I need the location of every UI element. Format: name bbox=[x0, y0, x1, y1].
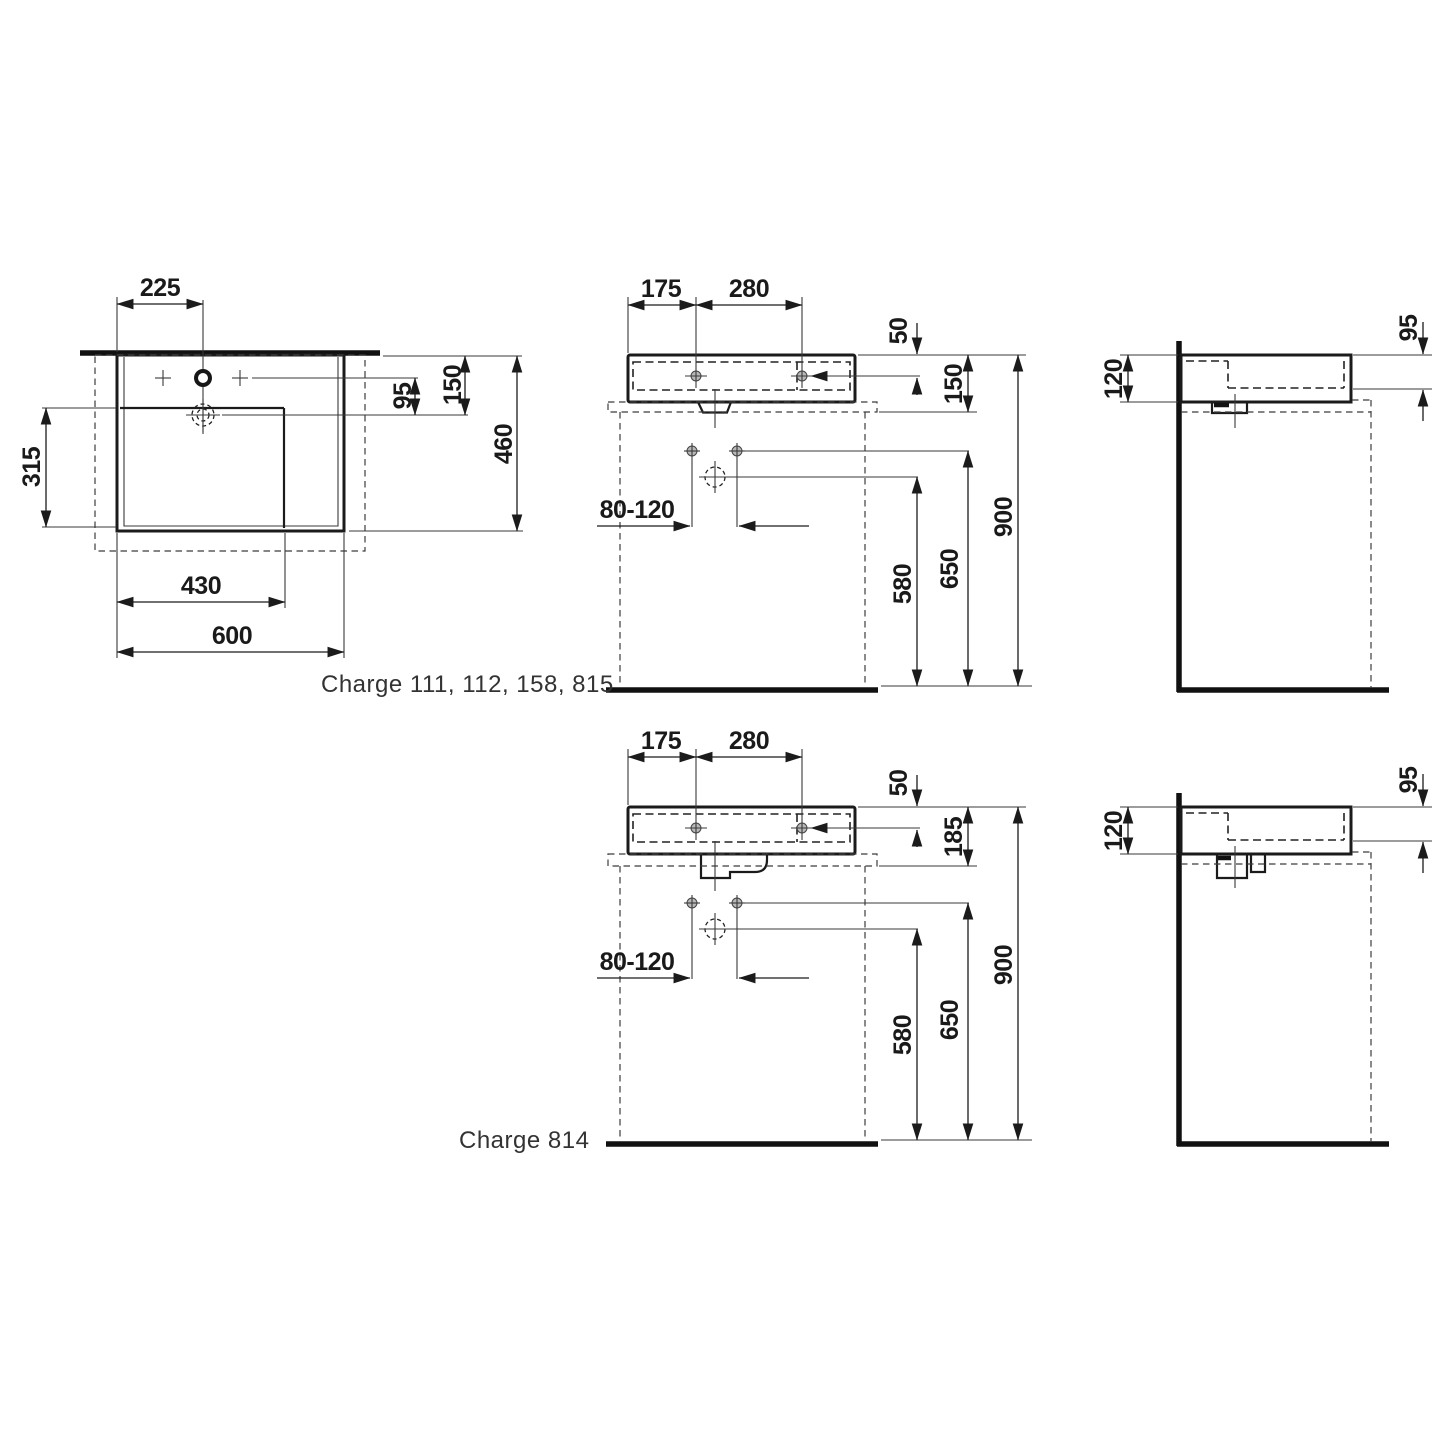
dim-fixing-hole-span: 80-120 bbox=[597, 948, 809, 978]
dim-body-height: 120 bbox=[1100, 807, 1128, 854]
dim-tap-hole-spacing: 280 bbox=[696, 727, 802, 757]
dim-rim-height: 900 bbox=[990, 807, 1018, 1140]
dim-label: 580 bbox=[889, 564, 917, 604]
dim-label: 80-120 bbox=[600, 948, 675, 976]
tap-hole-icon bbox=[685, 364, 707, 388]
product-label-countertop-model: Charge 814 bbox=[459, 1127, 589, 1154]
dim-label: 95 bbox=[389, 382, 417, 409]
dim-label: 175 bbox=[641, 727, 682, 755]
product-label-wall-hung-models: Charge 111, 112, 158, 815 bbox=[321, 671, 614, 698]
dim-label: 900 bbox=[990, 945, 1018, 985]
washbasin-outline bbox=[117, 355, 344, 531]
washbasin-outline bbox=[1181, 355, 1351, 402]
plan-view: 225 95 150 460 315 430 600 bbox=[18, 274, 523, 658]
dim-label: 175 bbox=[641, 275, 682, 303]
dim-fixing-hole-span: 80-120 bbox=[597, 496, 809, 526]
dim-label: 120 bbox=[1100, 811, 1128, 851]
dim-label: 280 bbox=[729, 727, 769, 755]
tap-hole-icon bbox=[791, 364, 813, 388]
spec-sheet-page: 225 95 150 460 315 430 600 bbox=[0, 0, 1445, 1445]
dim-tap-from-left: 175 bbox=[628, 727, 696, 757]
dim-label: 900 bbox=[990, 497, 1018, 537]
counter-clearance-outline bbox=[608, 854, 877, 866]
basin-hidden-edge bbox=[1186, 813, 1344, 840]
dim-label: 315 bbox=[18, 446, 46, 487]
dim-tap-hole-spacing: 280 bbox=[696, 275, 802, 305]
dim-label: 580 bbox=[889, 1015, 917, 1055]
fixing-hole-icon bbox=[729, 895, 745, 911]
drain-icon bbox=[699, 913, 731, 945]
dim-label: 95 bbox=[1395, 314, 1423, 341]
washbasin-inner-edge bbox=[124, 357, 338, 526]
tap-hole-icon bbox=[196, 371, 210, 385]
basin-hidden-edge bbox=[1186, 361, 1344, 388]
washbasin-outline bbox=[1181, 807, 1351, 854]
dim-basin-depth: 315 bbox=[18, 408, 46, 527]
tap-hole-icon bbox=[685, 816, 707, 840]
tap-hole-option-right-icon bbox=[232, 370, 248, 386]
dim-tap-hole-offset: 225 bbox=[117, 274, 203, 304]
dim-label: 600 bbox=[212, 622, 252, 650]
dim-rim-to-drain: 150 bbox=[439, 356, 467, 415]
dim-label: 50 bbox=[885, 770, 913, 797]
drain-icon bbox=[699, 461, 731, 493]
clearance-outline bbox=[95, 355, 365, 551]
fixing-hole-icon bbox=[729, 443, 745, 459]
front-view-wall-hung: 175 280 50 150 80-120 580 650 bbox=[597, 275, 1032, 690]
dim-label: 185 bbox=[940, 816, 968, 857]
dim-basin-width: 430 bbox=[117, 572, 285, 602]
dim-label: 150 bbox=[439, 365, 467, 405]
dim-fixing-height: 650 bbox=[936, 451, 968, 686]
dim-rim-height: 900 bbox=[990, 355, 1018, 686]
dim-label: 280 bbox=[729, 275, 769, 303]
dim-tap-below-rim: 50 bbox=[885, 770, 917, 847]
dim-body-height: 120 bbox=[1100, 355, 1128, 402]
dim-label: 225 bbox=[140, 274, 181, 302]
dim-drain-height: 580 bbox=[889, 477, 917, 686]
dim-label: 460 bbox=[490, 424, 518, 464]
dim-label: 80-120 bbox=[600, 496, 675, 524]
dim-overall-depth: 460 bbox=[490, 356, 518, 531]
technical-drawing: 225 95 150 460 315 430 600 bbox=[0, 0, 1445, 1445]
dim-overall-width: 600 bbox=[117, 622, 344, 652]
drain-pipe-outline bbox=[1251, 854, 1265, 872]
dim-label: 650 bbox=[936, 549, 964, 589]
dim-tap-from-left: 175 bbox=[628, 275, 696, 305]
drain-icon bbox=[186, 399, 220, 432]
dim-tap-below-rim: 50 bbox=[885, 318, 917, 395]
side-view-countertop: 120 95 bbox=[1100, 766, 1432, 1146]
dim-label: 95 bbox=[1395, 766, 1423, 793]
fixing-hole-icon bbox=[684, 443, 700, 459]
dim-drain-height: 580 bbox=[889, 929, 917, 1140]
dim-label: 120 bbox=[1100, 359, 1128, 399]
front-view-countertop: 175 280 50 185 80-120 580 650 bbox=[597, 727, 1032, 1144]
dim-label: 650 bbox=[936, 1000, 964, 1040]
dim-body-height: 150 bbox=[940, 355, 968, 412]
side-view-wall-hung: 120 95 bbox=[1100, 314, 1432, 692]
dim-label: 430 bbox=[181, 572, 221, 600]
dim-label: 150 bbox=[940, 364, 968, 404]
dim-fixing-height: 650 bbox=[936, 903, 968, 1140]
dim-basin-inner-depth: 95 bbox=[1395, 314, 1423, 421]
dim-basin-inner-depth: 95 bbox=[1395, 766, 1423, 873]
tap-hole-icon bbox=[791, 816, 813, 840]
dim-label: 50 bbox=[885, 318, 913, 345]
tap-hole-option-left-icon bbox=[155, 370, 171, 386]
dim-body-height: 185 bbox=[940, 807, 968, 866]
dim-tap-to-drain: 95 bbox=[389, 378, 417, 415]
fixing-hole-icon bbox=[684, 895, 700, 911]
